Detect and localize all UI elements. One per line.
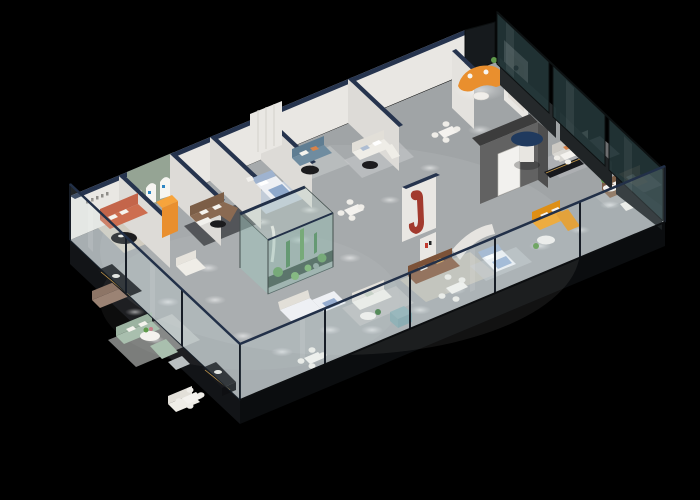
dining-chair	[198, 392, 205, 398]
glass-reflection	[470, 248, 475, 292]
pillow	[468, 74, 473, 79]
plant	[491, 57, 497, 63]
round-table	[473, 92, 489, 100]
spotlight-glow	[125, 308, 145, 316]
logo-red-mark	[425, 243, 428, 248]
logo-black-mark	[429, 241, 432, 245]
dining-chair	[187, 387, 194, 393]
pillow	[484, 70, 489, 75]
spotlight-glow	[420, 164, 440, 172]
wall-art-frame	[106, 192, 109, 196]
dining-chair	[432, 132, 439, 138]
dining-chair	[443, 137, 450, 143]
black-coffee-table	[210, 220, 226, 228]
flowers	[149, 327, 153, 331]
wall-art-frame	[96, 196, 99, 200]
spotlight-glow	[380, 196, 400, 204]
dining-chair	[176, 398, 183, 404]
arch-logo-mark	[162, 185, 165, 188]
arch-window	[160, 177, 170, 199]
arch-logo-mark	[148, 191, 151, 194]
wall-art-frame	[101, 194, 104, 198]
dining-chair	[349, 215, 356, 221]
glass-reflection	[566, 80, 574, 136]
dining-chair	[565, 160, 571, 165]
feature-wall-return	[538, 122, 548, 188]
glass-reflection	[300, 316, 305, 360]
dining-chair	[187, 403, 194, 409]
dining-chair	[338, 210, 345, 216]
dining-chair	[454, 126, 461, 132]
navy-table-top	[511, 132, 543, 147]
dining-chair	[554, 156, 560, 161]
dining-chair	[358, 204, 365, 210]
white-door-panel	[498, 145, 520, 196]
spotlight-glow	[204, 296, 226, 305]
floorplan-svg	[0, 0, 700, 500]
dining-chair	[443, 121, 450, 127]
showroom-render	[0, 0, 700, 500]
black-round-table	[301, 166, 319, 175]
black-coffee-table	[362, 161, 378, 169]
dining-chair	[347, 199, 354, 205]
glass-reflection	[506, 22, 514, 78]
glass-reflection	[150, 263, 155, 320]
spotlight-glow	[339, 254, 361, 263]
plant	[144, 328, 149, 333]
round-table	[140, 331, 160, 341]
